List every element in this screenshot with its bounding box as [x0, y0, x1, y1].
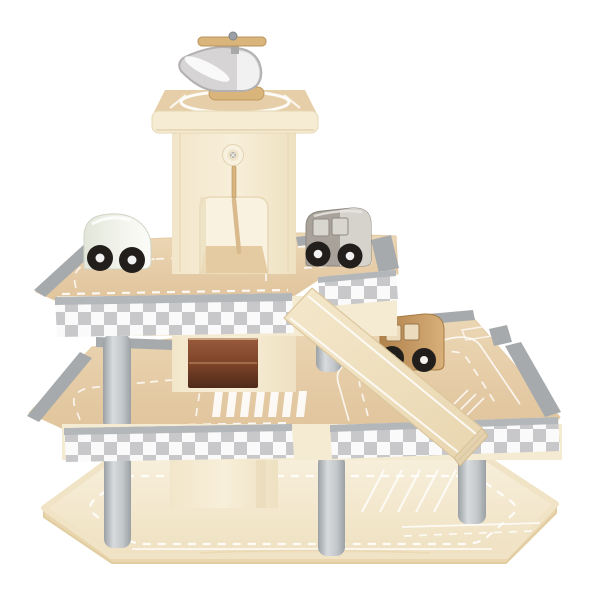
pillar — [104, 452, 131, 548]
elevator-opening — [200, 197, 268, 273]
helicopter — [179, 32, 266, 100]
pillar — [318, 454, 345, 556]
elevator-tower — [152, 90, 318, 274]
toy-parking-garage-photo: Wooden toy parking garage with three lev… — [0, 0, 600, 600]
wheel-hub — [346, 252, 355, 261]
scene-illustration — [0, 0, 600, 600]
car-window — [404, 324, 419, 340]
wheel-hub — [128, 256, 137, 265]
rotor-hub — [229, 32, 237, 40]
car-window — [313, 219, 329, 236]
wheel-hub — [314, 250, 323, 259]
opening-inner-shadow — [200, 197, 206, 273]
tower-screw-button — [223, 145, 244, 166]
car-white-van — [84, 214, 151, 273]
pillar — [103, 334, 131, 430]
tower-middle-section — [172, 334, 296, 392]
car-gray-van — [306, 208, 372, 269]
car-window — [332, 218, 348, 235]
wheel-hub — [420, 356, 428, 364]
elevator-floor — [200, 246, 268, 273]
elevator-rod-handle — [232, 166, 236, 198]
wheel-hub — [96, 254, 105, 263]
